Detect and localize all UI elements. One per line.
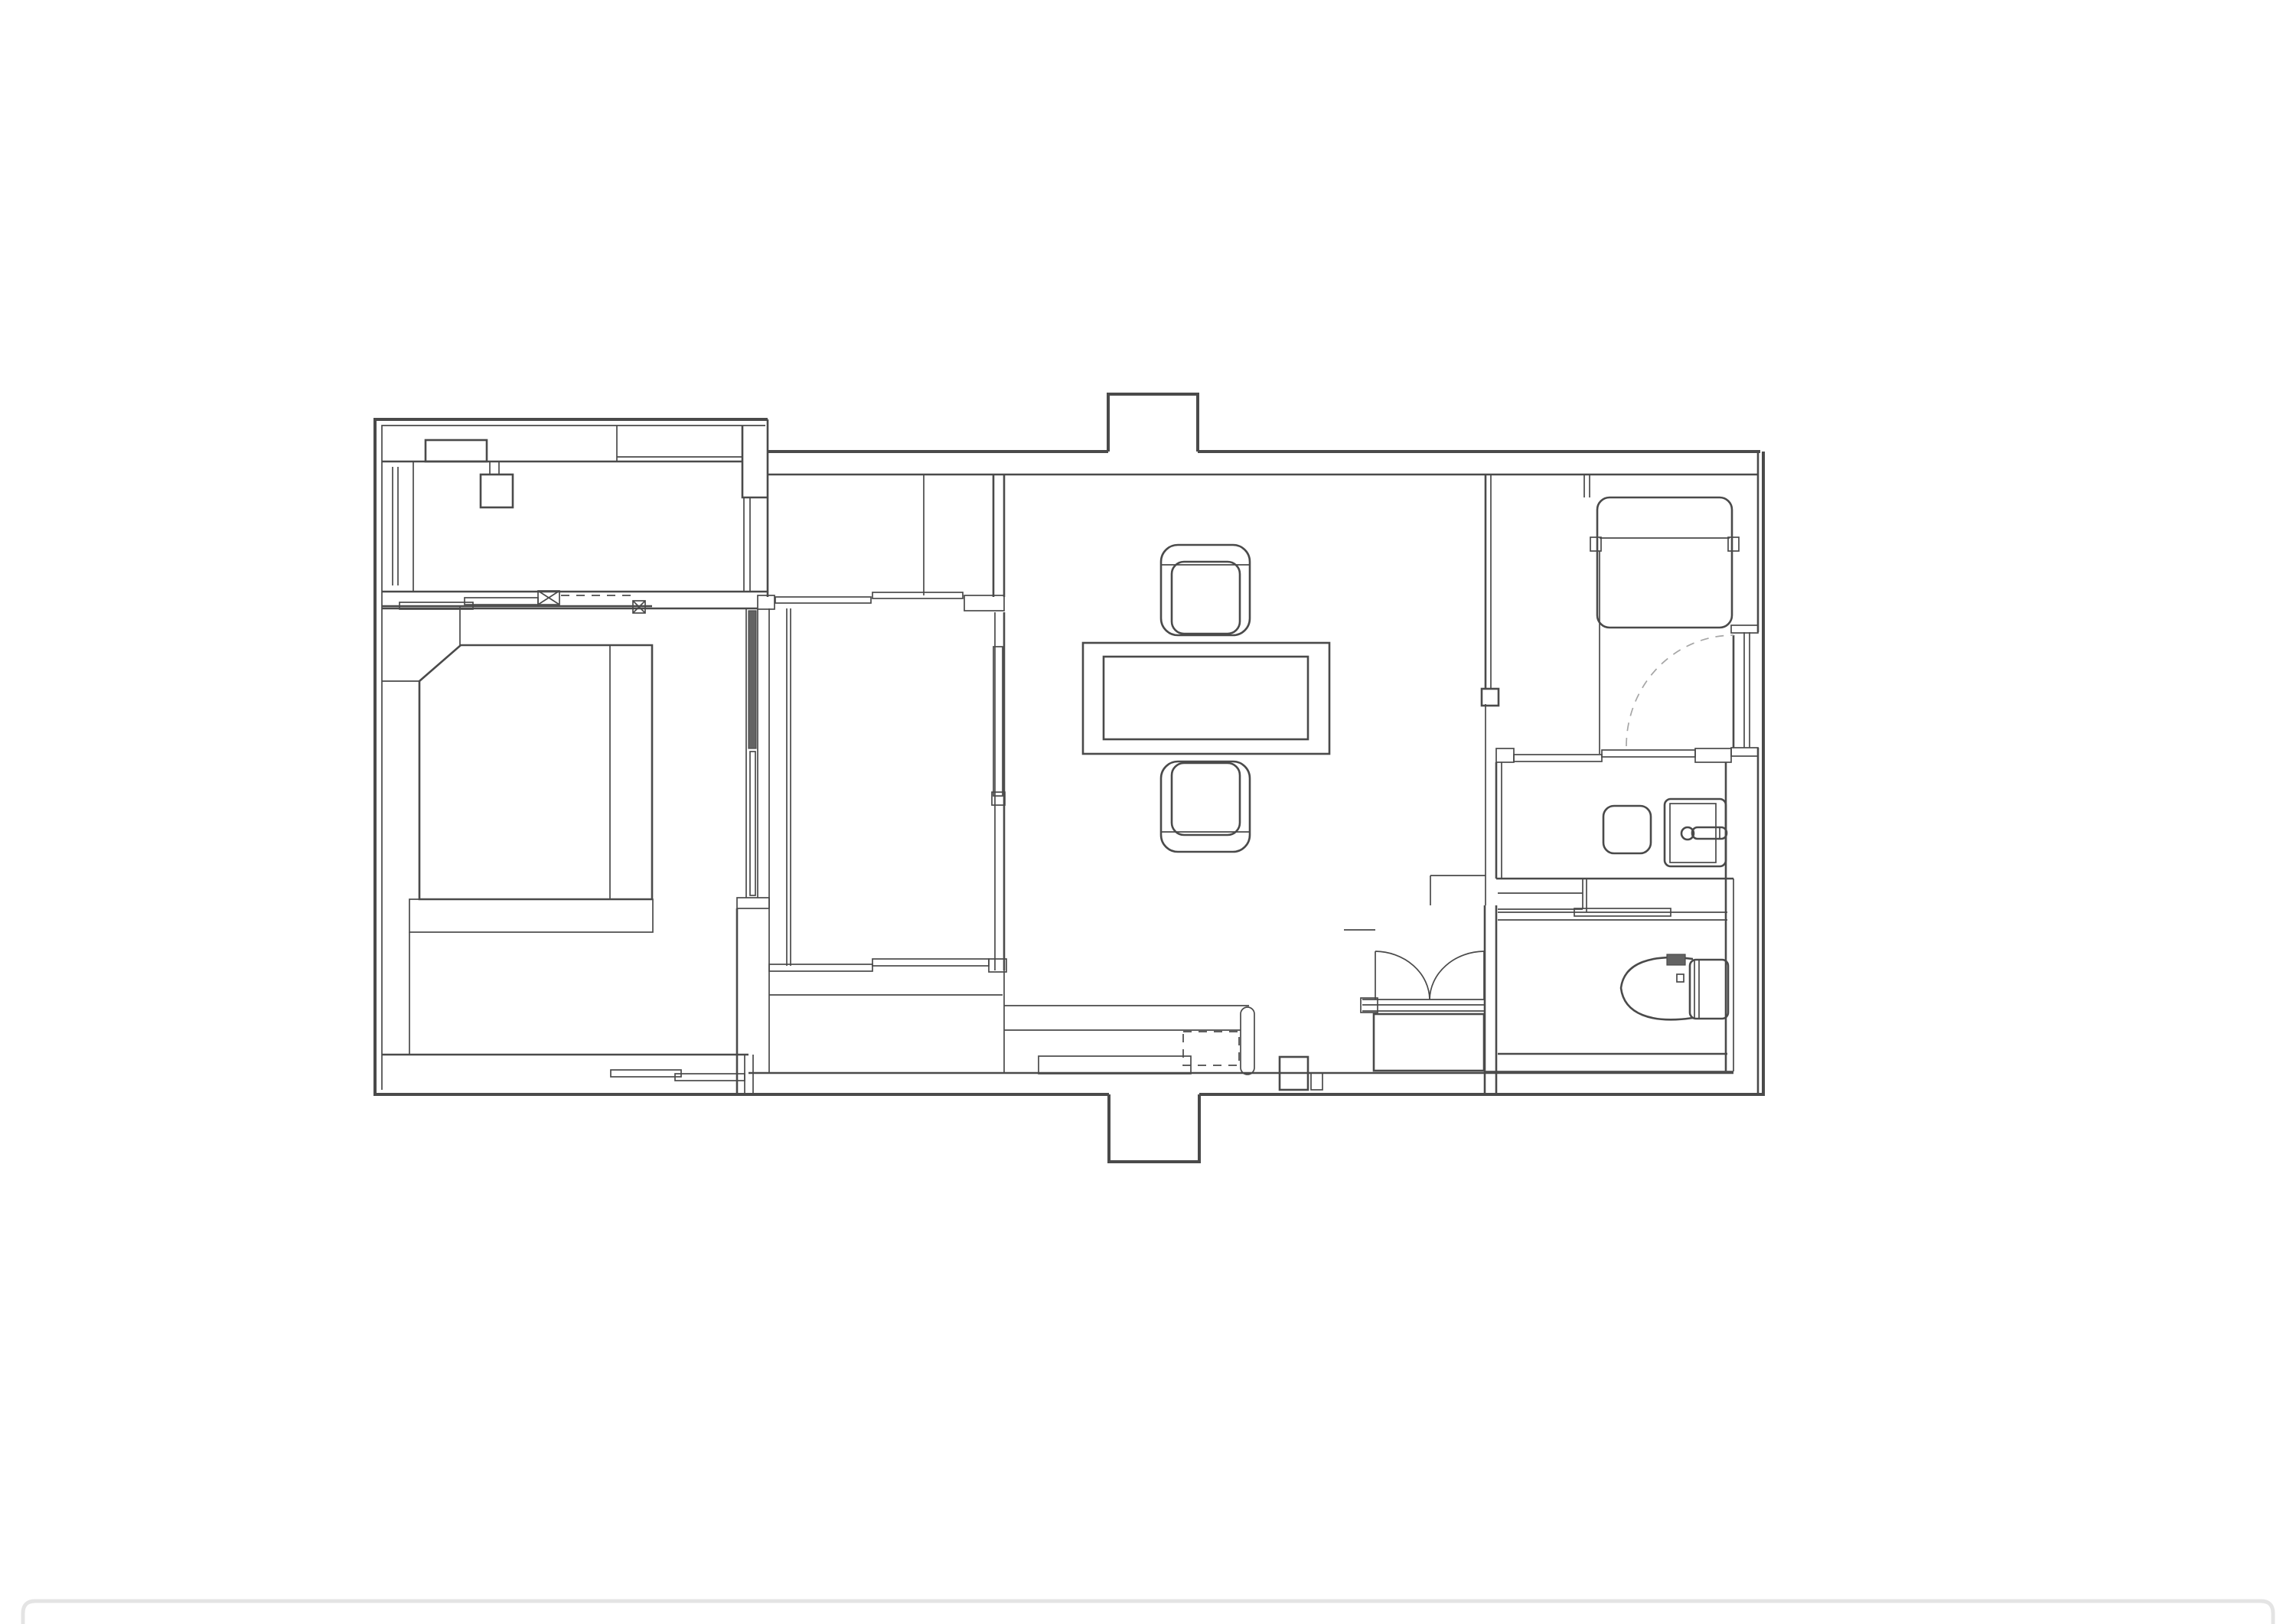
top-pillar-protrusion [1108, 394, 1198, 452]
sliding-partition-east [992, 612, 1005, 970]
floor-chair-south [1161, 761, 1250, 852]
post [1482, 689, 1499, 706]
open-sliding-panel [750, 752, 755, 895]
bedroom [382, 606, 769, 1094]
living-dining-room [1083, 474, 1499, 930]
wall-cabinet [426, 440, 487, 461]
closet [758, 474, 1004, 611]
toilet-bowl [1621, 957, 1693, 1019]
base-cabinet [1039, 1056, 1191, 1074]
vanity-sink [1665, 799, 1727, 866]
shoe-bench [1590, 497, 1739, 628]
door-swing-arc [1626, 635, 1733, 746]
entry-hall [1496, 475, 1739, 762]
outer-walls [375, 394, 1763, 1162]
toilet-room [1485, 908, 1733, 1071]
closet-sliding-door-right [872, 592, 963, 598]
bed [419, 645, 652, 899]
toilet [1621, 954, 1728, 1019]
tatami-room [758, 474, 1006, 995]
floor-chair-north [1161, 545, 1250, 635]
floor-plan-drawing [0, 0, 2296, 1624]
page [0, 0, 2296, 1624]
foot-platform [409, 899, 653, 932]
closet-sliding-door-left [775, 597, 871, 603]
hanging-unit [481, 474, 513, 507]
dining-table [1083, 643, 1329, 754]
counter-end-panel [1241, 1007, 1254, 1075]
page-bottom-panel-edge [23, 1601, 2273, 1624]
toilet-sliding-door [1498, 908, 1727, 920]
bifold-closet [1361, 905, 1496, 1094]
entry-door-jamb [1731, 625, 1758, 756]
south-sliding-doors [769, 959, 1006, 972]
faucet-lever [1692, 827, 1727, 839]
sliding-panel-track-east [737, 608, 769, 1094]
stool [1603, 806, 1651, 853]
service-box-small [1311, 1073, 1322, 1090]
flush-box [1667, 954, 1685, 965]
hall-sliding-door [1496, 748, 1731, 762]
kitchen-area [1004, 970, 1322, 1090]
bifold-door-arc-left [1375, 951, 1430, 1000]
dark-sliding-panel [748, 611, 756, 748]
entry-door [1626, 635, 1733, 748]
washroom [1496, 762, 1733, 1071]
toilet-tank [1690, 960, 1728, 1019]
bottom-window [611, 1055, 753, 1094]
sliding-window-track [400, 591, 647, 613]
bottom-pillar-protrusion [1109, 1094, 1199, 1162]
cabinet-box [1374, 1014, 1484, 1071]
storage-room [382, 419, 768, 613]
bifold-door-arc-right [1430, 951, 1484, 1000]
crossed-box-symbol [538, 591, 559, 605]
appliance-dashed-outline [1183, 1032, 1239, 1065]
